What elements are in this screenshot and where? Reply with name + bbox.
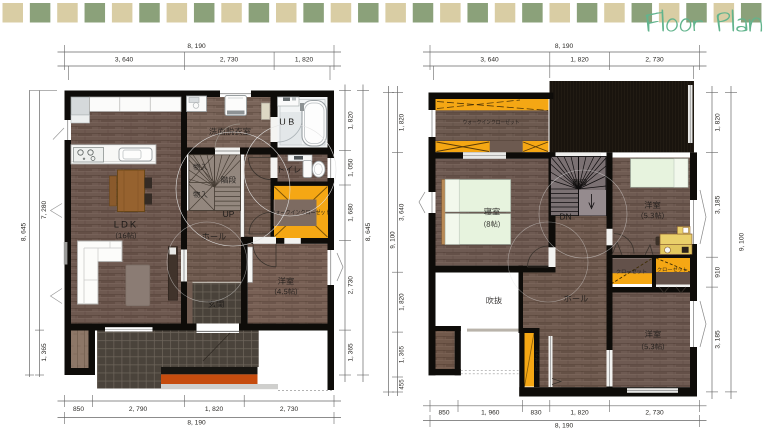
svg-text:UP: UP (223, 209, 235, 219)
svg-text:2, 730: 2, 730 (220, 56, 239, 63)
svg-text:1, 820: 1, 820 (398, 113, 405, 131)
svg-text:1, 365: 1, 365 (398, 345, 405, 363)
svg-text:7, 280: 7, 280 (41, 201, 48, 220)
svg-text:3, 640: 3, 640 (480, 56, 499, 63)
svg-text:8, 190: 8, 190 (187, 43, 206, 50)
svg-text:3, 640: 3, 640 (398, 203, 405, 221)
svg-text:1, 820: 1, 820 (205, 406, 224, 413)
svg-text:UB: UB (279, 117, 297, 127)
svg-text:8, 190: 8, 190 (555, 423, 574, 430)
svg-text:9, 100: 9, 100 (389, 231, 396, 249)
svg-text:1, 365: 1, 365 (41, 343, 48, 362)
svg-text:1, 820: 1, 820 (715, 113, 722, 132)
svg-text:2, 790: 2, 790 (129, 406, 148, 413)
svg-text:2, 730: 2, 730 (280, 406, 299, 413)
svg-text:9, 100: 9, 100 (739, 233, 746, 252)
svg-text:910: 910 (715, 266, 722, 277)
svg-text:3, 185: 3, 185 (715, 195, 722, 214)
svg-text:1, 820: 1, 820 (348, 111, 355, 130)
svg-text:DN: DN (559, 212, 571, 222)
svg-text:1, 365: 1, 365 (348, 343, 355, 362)
svg-text:1, 820: 1, 820 (295, 56, 314, 63)
svg-text:850: 850 (438, 410, 449, 417)
svg-text:2, 730: 2, 730 (645, 410, 664, 417)
svg-text:1, 820: 1, 820 (398, 293, 405, 311)
svg-text:830: 830 (530, 410, 541, 417)
svg-text:1, 820: 1, 820 (570, 410, 589, 417)
svg-text:8, 190: 8, 190 (187, 420, 206, 427)
svg-text:8, 645: 8, 645 (365, 223, 372, 242)
svg-text:LDK: LDK (114, 220, 138, 231)
svg-text:2, 730: 2, 730 (348, 276, 355, 295)
svg-text:8, 190: 8, 190 (555, 43, 574, 50)
svg-text:1, 050: 1, 050 (348, 158, 355, 177)
svg-text:455: 455 (398, 379, 405, 390)
svg-text:3, 185: 3, 185 (715, 330, 722, 349)
svg-text:3, 640: 3, 640 (115, 56, 134, 63)
svg-text:850: 850 (73, 406, 84, 413)
svg-text:2, 730: 2, 730 (645, 56, 664, 63)
svg-text:1, 960: 1, 960 (481, 410, 500, 417)
svg-text:8, 645: 8, 645 (21, 223, 28, 242)
svg-text:1, 680: 1, 680 (348, 203, 355, 222)
svg-text:1, 820: 1, 820 (570, 56, 589, 63)
